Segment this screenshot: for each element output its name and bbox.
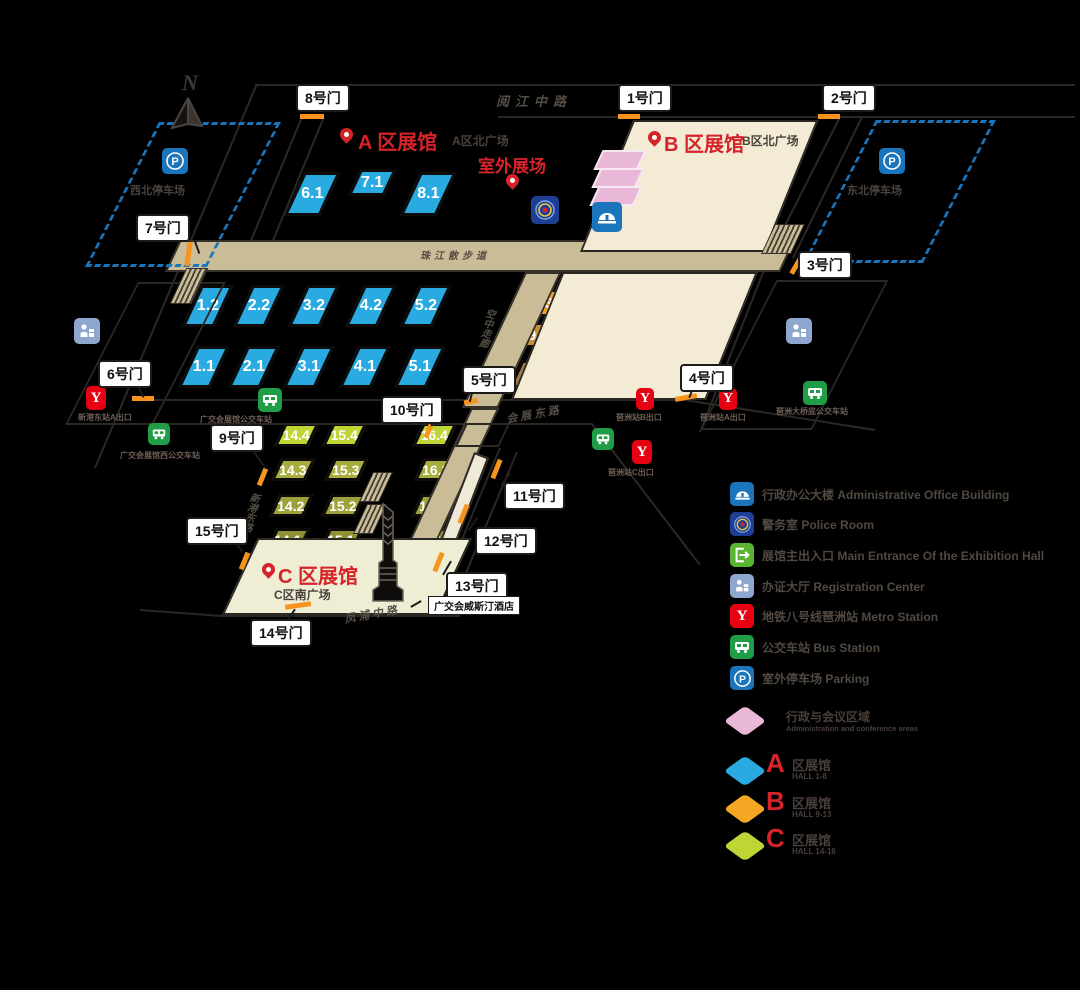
canton-fair-venue-map: N 阅江中路 珠江散步道 空中走廊 6.1 7.1 8.1 1.2 2.2 3.… xyxy=(0,0,1080,990)
north-label: N xyxy=(182,70,208,96)
bus-station-icon xyxy=(730,635,754,659)
legend-police-label: 警务室 Police Room xyxy=(762,516,874,533)
svg-text:P: P xyxy=(739,674,746,685)
legend-row-entrance: 展馆主出入口 Main Entrance Of the Exhibition H… xyxy=(730,543,1044,567)
legend-metro-label: 地铁八号线琶洲站 Metro Station xyxy=(762,608,938,625)
legend-zone-b-en: HALL 9-13 xyxy=(792,810,831,819)
metro-icon: Y xyxy=(632,440,652,464)
zone-a-title: A 区展馆 xyxy=(358,126,437,155)
north-arrow: N xyxy=(168,70,208,132)
admin-building-shape xyxy=(591,168,644,188)
gate-4: 4号门 xyxy=(680,364,734,392)
bus-sw-label: 广交会展馆西公交车站 xyxy=(120,450,200,461)
legend-row-admin: 行政办公大楼 Administrative Office Building xyxy=(730,482,1009,506)
police-icon xyxy=(730,512,754,536)
registration-icon xyxy=(730,574,754,598)
metro-pazhou-exit-b-label: 琶洲站B出口 xyxy=(616,412,662,423)
gate-1-marker xyxy=(618,114,640,119)
westin-hotel-label: 广交会威斯汀酒店 xyxy=(428,596,520,615)
legend-admin-zone-zh: 行政与会议区域 xyxy=(786,708,870,725)
gate-11: 11号门 xyxy=(504,482,565,510)
legend-zone-a-en: HALL 1-8 xyxy=(792,772,827,781)
legend-row-registration: 办证大厅 Registration Center xyxy=(730,574,925,598)
metro-icon: Y xyxy=(730,604,754,628)
bus-station-icon xyxy=(592,428,614,450)
legend-row-police: 警务室 Police Room xyxy=(730,512,874,536)
metro-pazhou-exit-c-label: 琶洲站C出口 xyxy=(608,467,654,478)
legend-parking-label: 室外停车场 Parking xyxy=(762,670,869,687)
gate-8: 8号门 xyxy=(296,84,350,112)
legend-zone-a-letter: A xyxy=(766,748,785,779)
gate-2-marker xyxy=(818,114,840,119)
gate-5: 5号门 xyxy=(462,366,516,394)
registration-icon xyxy=(786,318,812,344)
main-entrance-icon xyxy=(730,543,754,567)
bus-station-icon xyxy=(258,388,282,412)
parking-nw-label: 西北停车场 xyxy=(130,182,185,198)
registration-icon xyxy=(74,318,100,344)
gate-10: 10号门 xyxy=(381,396,443,424)
gate-12: 12号门 xyxy=(475,527,537,555)
legend-row-parking: P 室外停车场 Parking xyxy=(730,666,869,690)
bus-bridge-label: 琶洲大桥底公交车站 xyxy=(776,406,848,417)
admin-building-icon xyxy=(730,482,754,506)
gate-2: 2号门 xyxy=(822,84,876,112)
metro-icon: Y xyxy=(636,388,654,410)
legend-bus-label: 公交车站 Bus Station xyxy=(762,639,880,656)
metro-pazhou-exit-a-label: 琶洲站A出口 xyxy=(700,412,746,423)
legend-row-bus: 公交车站 Bus Station xyxy=(730,635,880,659)
metro-xingang-exit-a-label: 新港东站A出口 xyxy=(78,412,132,423)
zone-b-plaza-label: B区北广场 xyxy=(742,132,799,149)
admin-building-icon xyxy=(592,202,622,232)
police-icon xyxy=(531,196,559,224)
gate-3: 3号门 xyxy=(798,251,852,279)
parking-icon: P xyxy=(162,148,188,174)
promenade-label: 珠江散步道 xyxy=(420,247,490,262)
legend-row-metro: Y 地铁八号线琶洲站 Metro Station xyxy=(730,604,938,628)
svg-text:P: P xyxy=(171,156,178,168)
gate-6: 6号门 xyxy=(98,360,152,388)
zone-b-title: B 区展馆 xyxy=(664,128,744,157)
parking-ne-label: 东北停车场 xyxy=(847,182,902,198)
gate-14: 14号门 xyxy=(250,619,312,647)
bus-station-icon xyxy=(148,423,170,445)
zone-c-title: C 区展馆 xyxy=(278,560,358,589)
legend-zone-b-letter: B xyxy=(766,786,785,817)
parking-icon: P xyxy=(730,666,754,690)
zone-a-plaza-label: A区北广场 xyxy=(452,132,509,149)
legend-admin-label: 行政办公大楼 Administrative Office Building xyxy=(762,486,1009,503)
parking-icon: P xyxy=(879,148,905,174)
gate-1: 1号门 xyxy=(618,84,672,112)
admin-building-shape xyxy=(593,150,646,170)
gate-8-marker xyxy=(300,114,324,119)
svg-text:P: P xyxy=(888,156,895,168)
gate-15: 15号门 xyxy=(186,517,248,545)
gate-9: 9号门 xyxy=(210,424,264,452)
bus-station-icon xyxy=(803,381,827,405)
metro-icon: Y xyxy=(86,386,106,410)
legend-zone-c-letter: C xyxy=(766,823,785,854)
legend-zone-c-en: HALL 14-16 xyxy=(792,847,836,856)
westin-hotel-tower xyxy=(366,502,410,604)
legend-entrance-label: 展馆主出入口 Main Entrance Of the Exhibition H… xyxy=(762,547,1044,564)
legend-admin-zone-en: Administration and conference areas xyxy=(786,724,918,733)
gate-7: 7号门 xyxy=(136,214,190,242)
legend-registration-label: 办证大厅 Registration Center xyxy=(762,578,925,595)
compass-sail-icon xyxy=(168,96,208,132)
road-yuejiang-label: 阅江中路 xyxy=(496,91,572,110)
